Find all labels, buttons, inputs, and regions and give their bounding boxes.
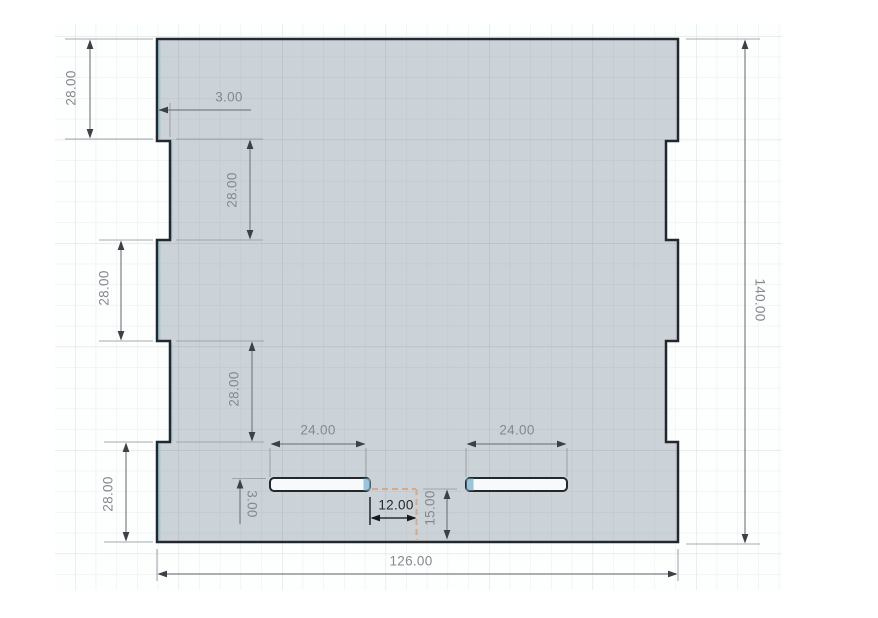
slot-right-shape[interactable] [466,478,567,491]
slot-left-endpoint-marker [364,479,371,491]
dimension-value[interactable]: 126.00 [389,554,432,569]
slot-right[interactable] [466,478,567,491]
cad-canvas: 28.00 3.00 28.00 28.00 28.00 28.00 [0,0,878,618]
dimension-value[interactable]: 12.00 [378,498,413,513]
slot-right-endpoint-marker [467,479,474,491]
dimension-value[interactable]: 28.00 [225,172,240,207]
slot-left[interactable] [270,478,371,491]
sketch-viewport: 28.00 3.00 28.00 28.00 28.00 28.00 [0,0,878,618]
dimension-value[interactable]: 28.00 [64,70,79,105]
dimension-value[interactable]: 3.00 [244,490,259,517]
dimension-value[interactable]: 15.00 [423,490,438,525]
dimension-value[interactable]: 140.00 [752,278,767,321]
sketch-profile-panel[interactable] [157,39,678,542]
dimension-value[interactable]: 3.00 [215,90,242,105]
slot-left-shape[interactable] [270,478,370,491]
dimension-value[interactable]: 24.00 [300,423,335,438]
panel-grid-overlay [157,39,678,542]
dimension-value[interactable]: 28.00 [97,270,112,305]
dimension-value[interactable]: 24.00 [499,423,534,438]
dimension-value[interactable]: 28.00 [227,371,242,406]
dimension-value[interactable]: 28.00 [101,476,116,511]
